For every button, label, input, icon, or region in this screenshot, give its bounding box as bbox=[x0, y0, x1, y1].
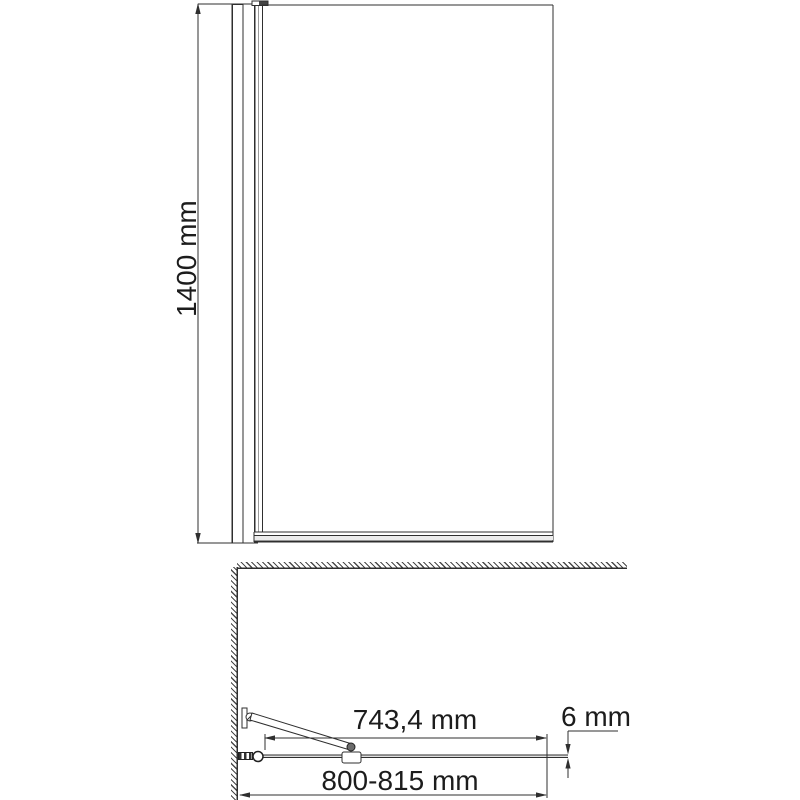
arrow-left-icon bbox=[239, 792, 250, 797]
support-bar-wall-plate bbox=[242, 708, 247, 728]
arrow-up-icon bbox=[565, 758, 570, 769]
plan-wall-hatch-left bbox=[231, 567, 237, 800]
arrow-left-icon bbox=[264, 735, 275, 740]
glass-clamp bbox=[342, 752, 361, 763]
plan-hinge-barrel bbox=[238, 752, 253, 760]
wall-profile bbox=[232, 4, 243, 543]
arrow-down-icon bbox=[195, 533, 200, 544]
front-view bbox=[197, 1, 553, 543]
glass-panel bbox=[262, 5, 553, 542]
bottom-rail bbox=[254, 532, 553, 542]
swivel-joint-icon bbox=[347, 743, 355, 751]
height-dimension-label: 1400 mm bbox=[173, 207, 201, 317]
technical-drawing: 1400 mm 743,4 mm 800-815 mm 6 mm bbox=[0, 0, 800, 800]
height-dimension bbox=[197, 4, 268, 543]
pivot-cap bbox=[252, 1, 268, 6]
drawing-linework bbox=[0, 0, 800, 800]
glass-thickness-dimension bbox=[568, 731, 618, 778]
arrow-right-icon bbox=[536, 735, 547, 740]
arrow-right-icon bbox=[536, 792, 547, 797]
plan-wall-hatch-top bbox=[237, 562, 627, 568]
glass-width-dimension-label: 743,4 mm bbox=[340, 706, 490, 734]
screw-icon bbox=[246, 713, 254, 721]
overall-width-dimension-label: 800-815 mm bbox=[320, 767, 480, 795]
glass-thickness-dimension-label: 6 mm bbox=[561, 703, 631, 731]
pivot-knob-icon bbox=[253, 752, 263, 762]
arrow-down-icon bbox=[565, 744, 570, 755]
support-bar bbox=[250, 713, 352, 750]
pivot-profile bbox=[255, 5, 263, 532]
plan-glass bbox=[262, 755, 568, 758]
arrow-up-icon bbox=[195, 3, 200, 14]
